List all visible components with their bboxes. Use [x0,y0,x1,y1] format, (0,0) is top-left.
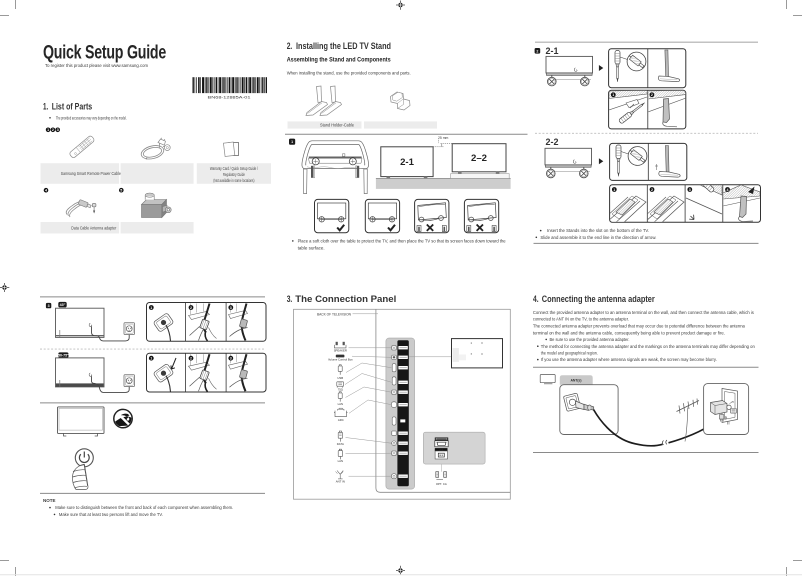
svg-text:The connected antenna adapter: The connected antenna adapter prevents o… [533,324,745,329]
svg-text:Data Cable Antenna adapter: Data Cable Antenna adapter [71,226,117,231]
svg-text:Insert the Stands into the slo: Insert the Stands into the slot on the b… [547,228,649,233]
svg-text:1: 1 [47,128,49,132]
svg-text:50-75″: 50-75″ [58,353,69,357]
svg-text:Be sure to use the provided an: Be sure to use the provided antenna adap… [550,337,630,342]
svg-text:Samsung Smart Remote Power Cab: Samsung Smart Remote Power Cable [61,171,122,176]
svg-text:2–2: 2–2 [471,153,487,164]
svg-text:The method for connecting the: The method for connecting the antenna ad… [541,344,755,349]
svg-text:2-1: 2-1 [400,157,415,168]
svg-text:2: 2 [190,306,192,310]
svg-text:(Not available in some locatio: (Not available in some locations) [213,178,254,183]
svg-text:5: 5 [120,189,122,193]
svg-text:When installing the stand, use: When installing the stand, use the provi… [287,70,411,75]
svg-text:75Ω: 75Ω [338,388,343,392]
svg-text:3: 3 [689,188,691,192]
svg-text:3.: 3. [287,293,293,304]
svg-text:2.: 2. [287,40,293,51]
svg-text:List of Parts: List of Parts [52,101,92,112]
svg-text:3: 3 [57,128,59,132]
svg-text:Quick Setup Guide: Quick Setup Guide [43,43,166,64]
svg-text:USB: USB [337,376,343,380]
svg-text:3: 3 [48,304,50,308]
svg-text:ANT(s): ANT(s) [570,378,581,382]
svg-text:25 mm: 25 mm [438,136,449,140]
svg-text:connected to ANT IN on the TV,: connected to ANT IN on the TV, to the an… [533,317,629,322]
svg-text:1: 1 [150,306,152,310]
svg-text:Stand Holder-Cable: Stand Holder-Cable [320,122,355,127]
svg-text:1: 1 [613,188,615,192]
svg-text:1: 1 [612,93,614,97]
svg-text:Make sure that at least two pe: Make sure that at least two persons lift… [59,512,163,517]
svg-text:2-1: 2-1 [546,45,559,56]
svg-text:table surface.: table surface. [298,246,325,251]
svg-text:1: 1 [291,140,293,144]
svg-text:ANT IN: ANT IN [336,480,345,484]
svg-text:3: 3 [230,306,232,310]
svg-text:2: 2 [52,128,54,132]
svg-text:Connecting the antenna adapter: Connecting the antenna adapter [542,293,655,304]
svg-text:BN68-12885A-01: BN68-12885A-01 [208,95,251,99]
svg-text:2: 2 [651,93,653,97]
svg-text:If you use the antenna adapter: If you use the antenna adapter where ant… [541,357,717,362]
svg-text:2: 2 [190,357,192,361]
svg-text:Connect the provided antenna a: Connect the provided antenna adapter to … [533,310,755,315]
svg-text:4.: 4. [533,293,539,304]
svg-text:The Connection Panel: The Connection Panel [295,293,396,304]
svg-text:To register this product pleas: To register this product please visit ww… [45,63,148,68]
svg-text:2-2: 2-2 [546,136,559,147]
svg-text:DATA: DATA [337,442,344,446]
svg-text:LAN: LAN [338,459,343,463]
svg-text:Warranty Card / Quick Setup Gu: Warranty Card / Quick Setup Guide / [210,166,259,171]
svg-text:4: 4 [727,188,729,192]
svg-text:NOTE: NOTE [43,498,56,503]
svg-text:The provided accessories may v: The provided accessories may vary depend… [56,115,127,120]
svg-text:4: 4 [45,189,47,193]
svg-text:OPT. CA: OPT. CA [436,482,447,486]
svg-text:the model and geographical reg: the model and geographical region. [541,351,598,356]
svg-text:Place a soft cloth over the ta: Place a soft cloth over the table to pro… [298,239,506,244]
svg-text:Installing the LED TV Stand: Installing the LED TV Stand [296,40,391,51]
svg-text:1: 1 [150,357,152,361]
svg-text:1.: 1. [43,101,48,112]
svg-text:Make sure to distinguish betwe: Make sure to distinguish between the fro… [55,505,233,510]
svg-text:43″: 43″ [60,303,66,307]
svg-text:terminal on the wall and the a: terminal on the wall and the antenna cab… [533,330,725,335]
svg-text:ARC: ARC [338,418,344,422]
svg-text:3: 3 [230,357,232,361]
svg-text:Assembling the Stand and Compo: Assembling the Stand and Components [287,57,392,64]
svg-text:SPEAKER: SPEAKER [334,348,347,352]
svg-text:2: 2 [651,188,653,192]
svg-text:Slide and assemble it to the e: Slide and assemble it to the end line in… [540,235,656,240]
svg-text:2: 2 [536,49,538,53]
svg-text:LAN: LAN [338,402,343,406]
svg-text:Regulatory Guide: Regulatory Guide [223,172,245,177]
svg-text:Volume Control Box: Volume Control Box [328,357,353,361]
svg-text:BACK OF TELEVISION: BACK OF TELEVISION [317,312,352,316]
